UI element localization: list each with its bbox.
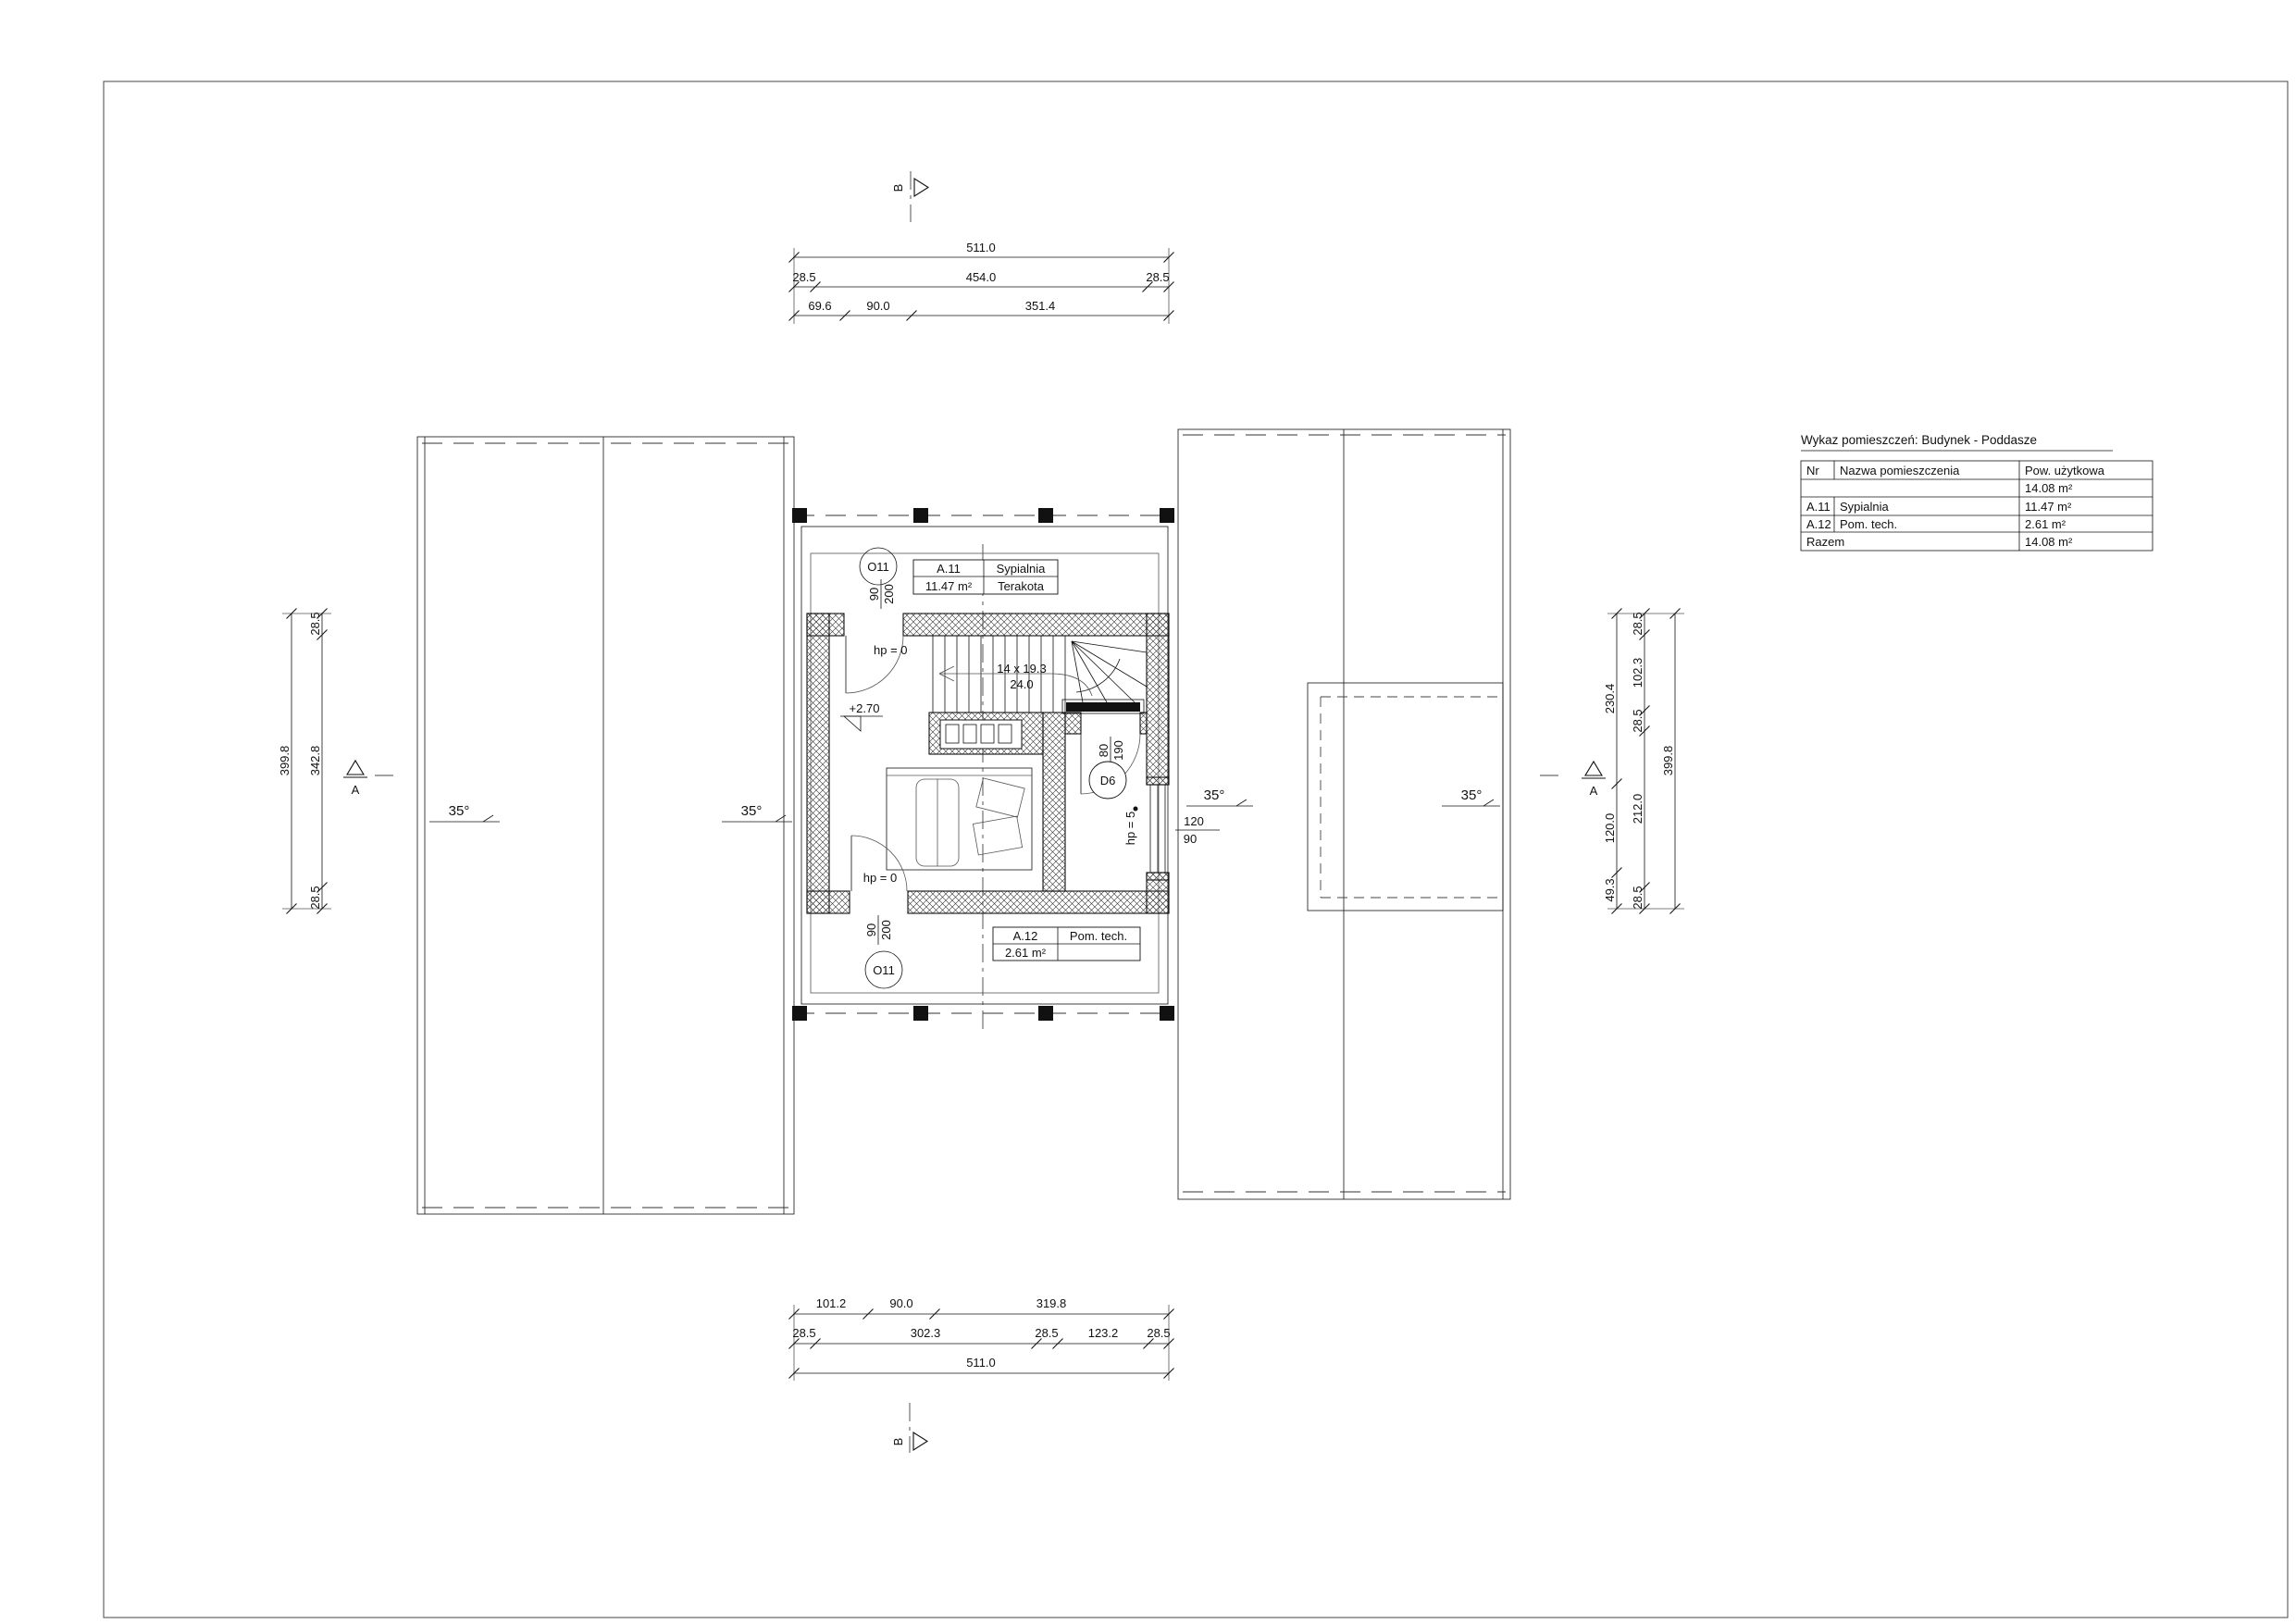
room-label-a12: A.12 Pom. tech. 2.61 m² (993, 927, 1140, 961)
section-marker-b-bottom: B (891, 1403, 927, 1453)
dimension-block-left: 399.8 28.5 342.8 28.5 (278, 609, 331, 914)
roof-slope-right-1: 35° (1186, 787, 1253, 806)
dim-left-3428: 342.8 (308, 746, 322, 776)
page-border (104, 81, 2288, 1618)
legend-cell-name: Pom. tech. (1840, 517, 1897, 531)
slope-label: 35° (449, 803, 470, 819)
sill-height-label: hp = 5 (1123, 812, 1137, 846)
section-marker-b-top: B (891, 171, 928, 222)
room-label-a11: A.11 Sypialnia 11.47 m² Terakota (913, 560, 1058, 594)
legend-cell-nr: A.12 (1806, 517, 1831, 531)
room-area: 11.47 m² (925, 579, 973, 593)
legend-row-a12: A.12 Pom. tech. 2.61 m² (1806, 517, 2066, 531)
dim-bot-1232: 123.2 (1088, 1326, 1119, 1340)
legend-cell-nr: A.11 (1806, 500, 1831, 514)
slope-label: 35° (1204, 787, 1225, 803)
roof-slope-right-2: 35° (1442, 787, 1500, 806)
door-width: 80 (1097, 744, 1111, 757)
section-label-b-bottom: B (891, 1438, 905, 1446)
roof-right: 35° 35° (1178, 429, 1510, 1199)
room-name: Pom. tech. (1070, 929, 1127, 943)
dim-right-2304: 230.4 (1603, 684, 1617, 714)
level-label: +2.70 (850, 701, 880, 715)
room-nr: A.12 (1013, 929, 1038, 943)
dim-right-120: 120.0 (1603, 813, 1617, 844)
roof-left: 35° 35° (417, 437, 794, 1214)
dim-right-285a: 28.5 (1631, 612, 1644, 635)
legend-header-nr: Nr (1806, 464, 1819, 477)
legend-row-razem: Razem 14.08 m² (1806, 535, 2073, 549)
floor-plan-sheet: B 511.0 28.5 454.0 28.5 69.6 90.0 351.4 … (0, 0, 2296, 1624)
pillow (976, 778, 1024, 817)
dim-right-1023: 102.3 (1631, 658, 1644, 688)
legend-cell-name: Sypialnia (1840, 500, 1890, 514)
plan-drawing: B 511.0 28.5 454.0 28.5 69.6 90.0 351.4 … (0, 0, 2296, 1624)
door-tag: D6 (1100, 774, 1116, 787)
level-marker: +2.70 (840, 701, 883, 731)
legend-row-total-top: 14.08 m² (2025, 481, 2073, 495)
stairs-width-label: 24.0 (1010, 677, 1033, 691)
bed (887, 768, 1032, 870)
section-label-b-top: B (891, 184, 905, 192)
dim-right-285b: 28.5 (1631, 709, 1644, 732)
window-width: 120 (1184, 814, 1204, 828)
dim-top-285l: 28.5 (792, 270, 815, 284)
dim-left-285b: 28.5 (308, 886, 322, 909)
section-label-a-left: A (352, 783, 360, 797)
duct-block (929, 713, 1043, 754)
dimension-block-right: 230.4 120.0 49.3 28.5 102.3 28.5 212.0 2… (1603, 609, 1684, 914)
legend-cell-nr: Razem (1806, 535, 1844, 549)
slope-label: 35° (741, 803, 763, 819)
section-label-a-right: A (1590, 784, 1598, 798)
dim-bot-285c: 28.5 (1147, 1326, 1170, 1340)
dim-bot-285a: 28.5 (792, 1326, 815, 1340)
window-top-o11: hp = 0 O11 90 200 (846, 548, 908, 693)
dim-top-511: 511.0 (966, 241, 996, 254)
window-height: 90 (1184, 832, 1197, 846)
sill-height-label: hp = 0 (863, 871, 898, 885)
window-height: 200 (879, 920, 893, 940)
stairs: 14 x 19.3 24.0 (933, 636, 1147, 713)
roof-slope-left-1: 35° (429, 803, 500, 822)
stairs-winder (1072, 641, 1147, 702)
room-name: Sypialnia (997, 562, 1047, 576)
window-width: 90 (867, 588, 881, 601)
dim-right-212: 212.0 (1631, 794, 1644, 824)
section-marker-a-right: A (1540, 762, 1606, 798)
dim-top-696: 69.6 (808, 299, 831, 313)
legend-title: Wykaz pomieszczeń: Budynek - Poddasze (1801, 433, 2037, 447)
dim-bot-3198: 319.8 (1036, 1296, 1067, 1310)
legend-cell-area: 14.08 m² (2025, 481, 2073, 495)
room-finish: Terakota (998, 579, 1045, 593)
legend-cell-area: 14.08 m² (2025, 535, 2073, 549)
window-height: 200 (882, 584, 896, 604)
dimension-block-top: 511.0 28.5 454.0 28.5 69.6 90.0 351.4 (789, 241, 1174, 324)
dim-right-3998: 399.8 (1661, 746, 1675, 776)
dim-left-3998: 399.8 (278, 746, 292, 776)
pillow (973, 816, 1022, 855)
window-tag: O11 (873, 963, 895, 977)
room-area: 2.61 m² (1005, 946, 1047, 960)
window-width: 90 (864, 924, 878, 936)
legend-cell-area: 2.61 m² (2025, 517, 2066, 531)
dim-right-285c: 28.5 (1631, 886, 1644, 909)
door-d6: 80 190 D6 (1081, 734, 1140, 799)
dim-bot-285b: 28.5 (1035, 1326, 1058, 1340)
roof-slope-left-2: 35° (722, 803, 792, 822)
legend-table: Wykaz pomieszczeń: Budynek - Poddasze Nr… (1801, 433, 2153, 551)
dim-bot-90: 90.0 (889, 1296, 912, 1310)
stairs-count-label: 14 x 19.3 (997, 662, 1047, 676)
door-height: 190 (1111, 740, 1125, 761)
legend-header-area: Pow. użytkowa (2025, 464, 2105, 477)
window-bottom-o11: hp = 0 90 200 O11 (851, 836, 907, 988)
dim-bot-1012: 101.2 (816, 1296, 847, 1310)
window-tag: O11 (867, 560, 889, 574)
slope-label: 35° (1461, 787, 1483, 803)
legend-cell-area: 11.47 m² (2025, 500, 2072, 514)
dim-right-493: 49.3 (1603, 878, 1617, 901)
dim-top-285r: 28.5 (1146, 270, 1169, 284)
dim-top-454: 454.0 (966, 270, 997, 284)
dimension-block-bottom: 101.2 90.0 319.8 28.5 302.3 28.5 123.2 2… (789, 1296, 1174, 1381)
legend-row-a11: A.11 Sypialnia 11.47 m² (1806, 500, 2072, 514)
dim-left-285t: 28.5 (308, 612, 322, 635)
section-marker-a-left: A (343, 761, 396, 797)
sill-height-label: hp = 0 (874, 643, 908, 657)
stair-threshold (1066, 702, 1140, 712)
legend-header-name: Nazwa pomieszczenia (1840, 464, 1960, 477)
dim-top-3514: 351.4 (1025, 299, 1056, 313)
dim-bot-511: 511.0 (966, 1356, 996, 1370)
dim-bot-3023: 302.3 (911, 1326, 941, 1340)
dim-top-90: 90.0 (866, 299, 889, 313)
room-nr: A.11 (937, 562, 961, 576)
